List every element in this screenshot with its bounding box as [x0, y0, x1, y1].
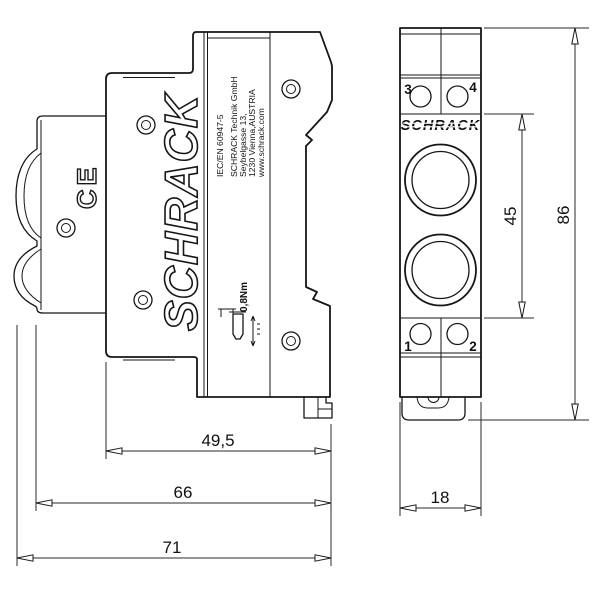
side-housing-outline: [106, 32, 332, 397]
terminal-number-3: 3: [404, 82, 412, 97]
dimension-width: 18: [400, 488, 481, 511]
dimension-arrow: [572, 404, 578, 420]
torque-pictogram: 0,8Nm: [218, 282, 260, 346]
lens-circle-top-inner: [412, 152, 469, 209]
terminal-screw-3: [410, 86, 431, 107]
dimension-total-height: 86: [554, 28, 578, 420]
lens-circle-top: [405, 145, 476, 216]
dimension-arrow: [572, 28, 578, 44]
screw-icon: [233, 314, 243, 339]
terminal-number-4: 4: [469, 80, 477, 95]
dimension-value: 71: [163, 538, 182, 557]
torque-label: 0,8Nm: [239, 282, 250, 312]
dimension-arrow: [315, 448, 331, 454]
panel-text-line: IEC/EN 60947-5: [215, 114, 225, 177]
extension-lines-front: [400, 28, 589, 516]
extension-lines-side: [17, 325, 331, 566]
lens-dome-bottom-inner: [22, 249, 41, 303]
lens-housing-outline: [14, 116, 106, 313]
dimension-value: 66: [174, 483, 193, 502]
dimension-arrow: [36, 500, 52, 506]
dimension-arrow: [106, 448, 122, 454]
ce-mark-icon: CE: [72, 163, 102, 209]
dimension-arrow: [465, 505, 481, 511]
side-brand-logo: SCHRACK: [155, 92, 207, 331]
rivet-icon: [134, 291, 152, 309]
rivet-icon: [282, 332, 300, 350]
dimension-arrow: [519, 302, 525, 318]
dimension-arrow: [400, 505, 416, 511]
dimension-value: 18: [431, 488, 450, 507]
dimension-value: 49,5: [201, 431, 234, 450]
dimensional-drawing: CE SCHRACK IEC/EN 60947-5 SCHRACK Techni…: [0, 0, 600, 600]
terminal-screw-2: [447, 324, 468, 345]
dimension-total-depth: 71: [17, 538, 331, 561]
dimension-arrow: [519, 114, 525, 130]
dimensions: 49,5 66 71 18 45: [17, 28, 589, 566]
terminal-number-1: 1: [404, 339, 412, 354]
rivet-icon-inner: [287, 85, 296, 94]
dimension-arrow: [315, 555, 331, 561]
terminal-number-2: 2: [469, 339, 477, 354]
technical-drawing-page: CE SCHRACK IEC/EN 60947-5 SCHRACK Techni…: [0, 0, 600, 600]
wire-range-arrow-icon: [251, 316, 260, 346]
lens-dome-top-inner: [24, 153, 41, 238]
dimension-front-depth: 49,5: [106, 431, 331, 454]
dimension-value: 86: [554, 206, 573, 225]
side-view: CE SCHRACK IEC/EN 60947-5 SCHRACK Techni…: [14, 32, 332, 418]
front-view: 3 4 1 2 SCHRACK: [400, 28, 481, 420]
rivet-icon: [137, 116, 155, 134]
rivet-icon-inner: [139, 296, 148, 305]
dimension-arrow: [17, 555, 33, 561]
lens-circle-bottom: [405, 235, 476, 306]
rivet-icon-inner: [287, 337, 296, 346]
rivet-icon: [57, 219, 75, 237]
terminal-screw-4: [447, 86, 468, 107]
rivet-icon-inner: [62, 224, 71, 233]
dimension-arrow: [315, 500, 331, 506]
dimension-value: 45: [501, 207, 520, 226]
rivet-icon-inner: [142, 121, 151, 130]
lens-circle-bottom-inner: [412, 242, 469, 299]
terminal-screw-1: [410, 324, 431, 345]
front-brand-logo: SCHRACK: [401, 118, 481, 134]
label-panel: IEC/EN 60947-5 SCHRACK Technik GmbH Seyb…: [215, 76, 266, 178]
dimension-body-depth: 66: [36, 483, 331, 506]
rivet-icon: [282, 80, 300, 98]
dimension-lens-section-height: 45: [501, 114, 525, 318]
panel-text-line: www.schrack.com: [256, 108, 266, 178]
